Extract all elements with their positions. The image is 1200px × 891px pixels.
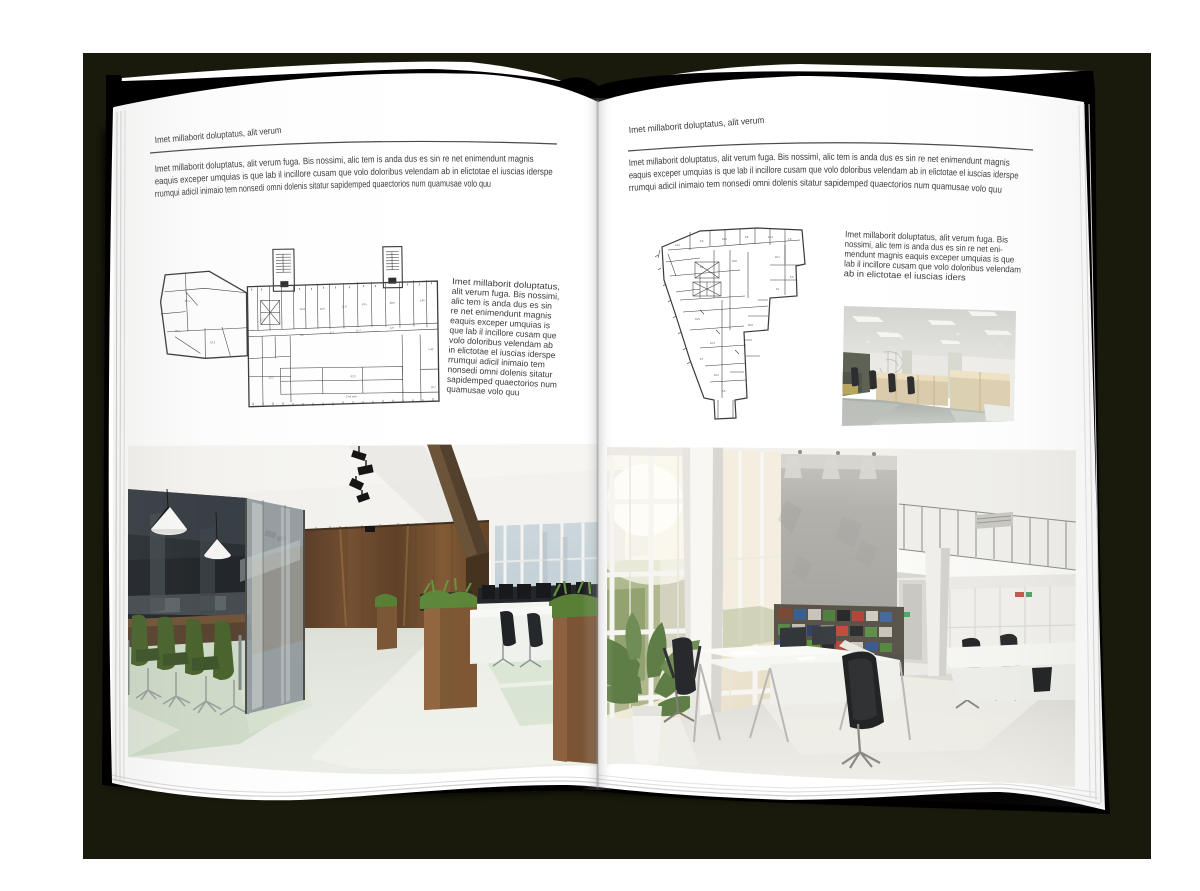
svg-text:18.9: 18.9 bbox=[748, 324, 753, 327]
svg-text:10.2: 10.2 bbox=[714, 374, 719, 377]
svg-text:12.3: 12.3 bbox=[722, 238, 727, 241]
svg-text:14.2: 14.2 bbox=[675, 244, 680, 247]
svg-text:31.6: 31.6 bbox=[695, 318, 700, 321]
svg-text:10.4: 10.4 bbox=[768, 236, 773, 239]
svg-text:22.1: 22.1 bbox=[775, 256, 780, 259]
svg-text:12.4: 12.4 bbox=[710, 342, 715, 345]
svg-text:16.8: 16.8 bbox=[732, 260, 737, 263]
